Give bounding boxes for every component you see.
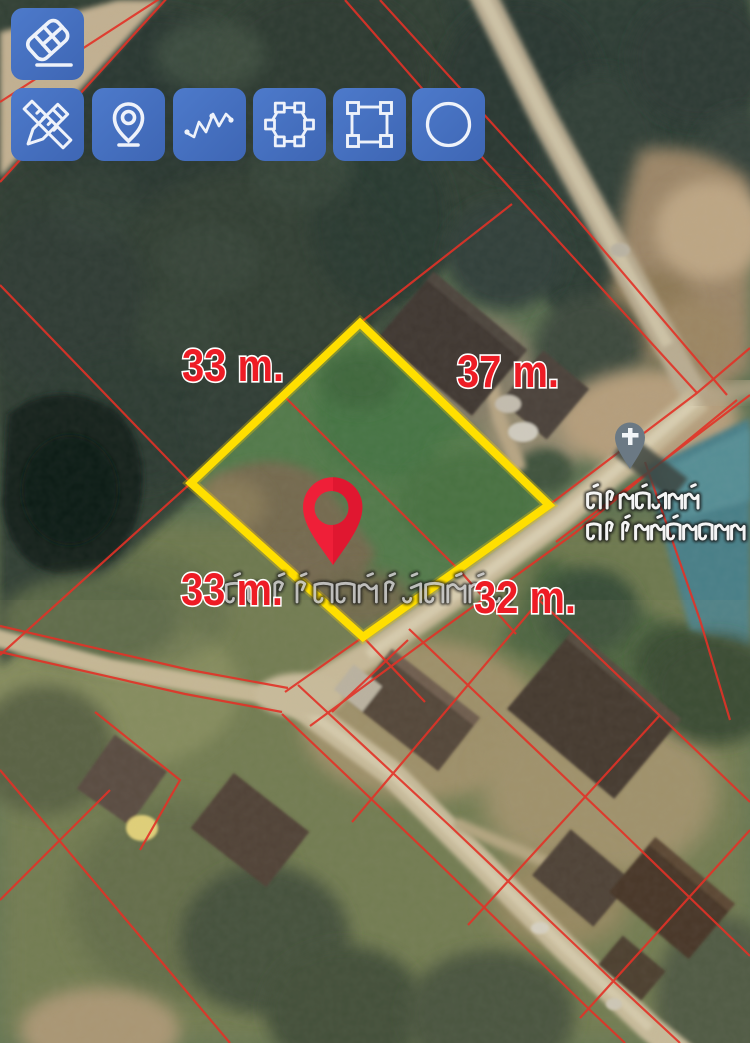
svg-text:33 m.: 33 m. [181,564,283,615]
svg-text:33 m.: 33 m. [182,340,284,391]
svg-text:32 m.: 32 m. [474,572,576,623]
svg-text:37 m.: 37 m. [457,346,559,397]
